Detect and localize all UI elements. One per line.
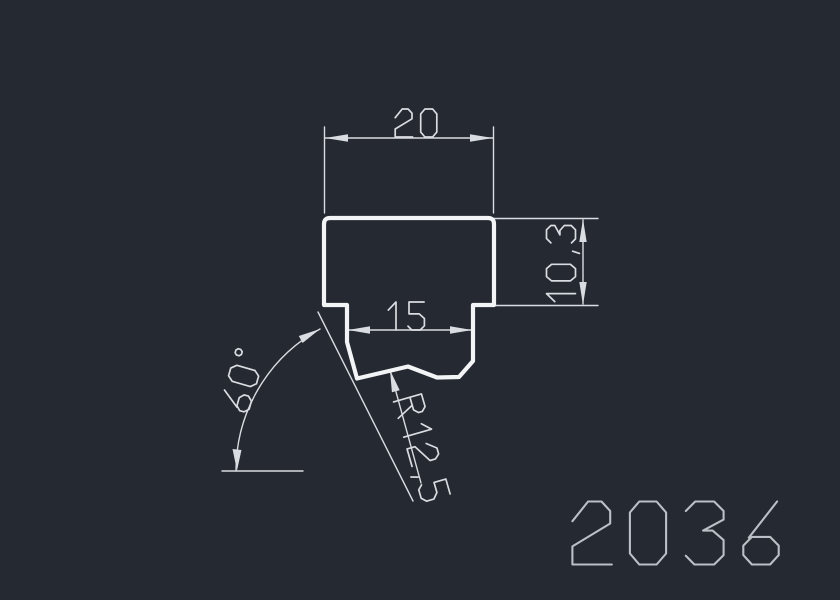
cad-drawing-canvas [0, 0, 840, 600]
drawing-background [0, 0, 840, 600]
cad-drawing-svg [0, 0, 840, 600]
